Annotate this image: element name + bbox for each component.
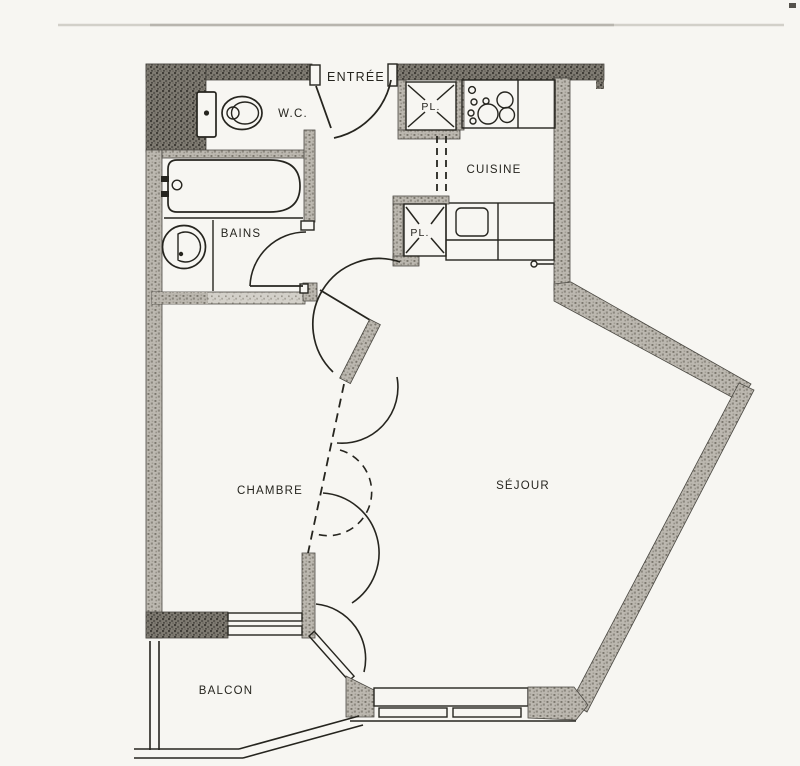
room-chambre bbox=[162, 304, 302, 612]
sejour-window-sill-left bbox=[379, 708, 447, 717]
chambre-bottom-wall bbox=[146, 612, 228, 638]
partition-dashed-line bbox=[308, 384, 344, 553]
closet-top-left-bar bbox=[398, 80, 406, 130]
bathtub-icon bbox=[168, 160, 300, 212]
closet-bottom-left-bar bbox=[393, 204, 403, 260]
closet-top-bottom-band bbox=[398, 130, 460, 139]
partition-pillar bbox=[302, 553, 315, 638]
toilet-tank-button bbox=[204, 110, 209, 115]
chambre-window-glazing-inner bbox=[228, 626, 302, 635]
label-cuisine: CUISINE bbox=[466, 164, 521, 176]
wc-bains-divider-wall bbox=[162, 150, 305, 158]
label-placard-bas: PL. bbox=[410, 227, 429, 239]
label-sejour: SÉJOUR bbox=[496, 479, 550, 492]
label-chambre: CHAMBRE bbox=[237, 485, 303, 497]
entry-right-jamb bbox=[388, 64, 397, 86]
right-wall-vertical bbox=[554, 78, 570, 291]
closet-top-right-bar bbox=[456, 80, 464, 130]
entry-left-jamb bbox=[310, 65, 320, 85]
left-wall bbox=[146, 150, 162, 638]
label-bains: BAINS bbox=[221, 228, 262, 240]
label-entree: ENTRÉE bbox=[327, 69, 385, 84]
room-entree bbox=[318, 80, 396, 288]
top-wall-right bbox=[390, 64, 604, 80]
chambre-door-leaf bbox=[320, 290, 375, 323]
floor-plan-drawing: ENTRÉE W.C. PL. CUISINE BAINS PL. CHAMBR… bbox=[0, 0, 800, 766]
label-wc: W.C. bbox=[278, 108, 308, 120]
closet-bottom-top-band bbox=[393, 196, 449, 204]
label-placard-haut: PL. bbox=[421, 101, 440, 113]
label-balcon: BALCON bbox=[199, 685, 254, 697]
gas-tap-icon bbox=[531, 261, 537, 267]
wc-bains-right-wall bbox=[304, 130, 315, 222]
washbasin-drain-dot bbox=[179, 252, 183, 256]
floor-plan-page: ENTRÉE W.C. PL. CUISINE BAINS PL. CHAMBR… bbox=[0, 0, 800, 766]
sejour-window-sill-right bbox=[453, 708, 521, 717]
bains-door-jamb bbox=[301, 221, 314, 230]
bains-bottom-wall-dark bbox=[152, 292, 208, 304]
chambre-window-glazing-outer bbox=[228, 613, 302, 621]
top-wall-end-cap bbox=[596, 80, 604, 89]
chambre-window bbox=[228, 613, 302, 635]
balcony-corner-block bbox=[346, 676, 374, 717]
toilet-bowl bbox=[222, 97, 262, 130]
bathtub-tap-tick-2 bbox=[161, 191, 169, 197]
bathtub-tap-tick-1 bbox=[161, 176, 169, 182]
scan-artifact bbox=[789, 3, 796, 8]
